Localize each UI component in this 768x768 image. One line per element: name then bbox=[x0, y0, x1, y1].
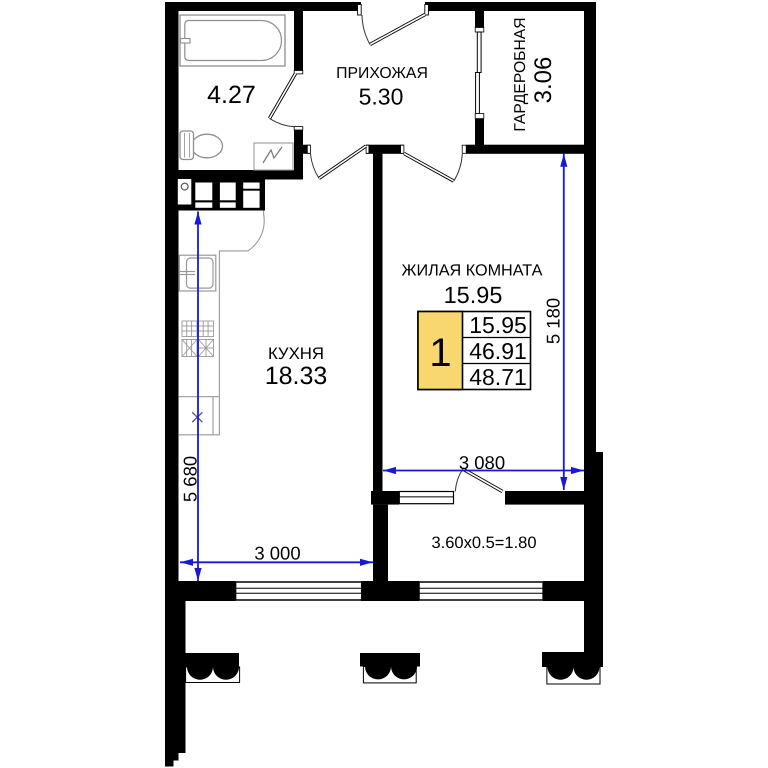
svg-text:3 000: 3 000 bbox=[254, 543, 300, 564]
svg-text:1: 1 bbox=[429, 331, 451, 375]
svg-text:5.30: 5.30 bbox=[359, 84, 404, 110]
svg-text:ЖИЛАЯ КОМНАТА: ЖИЛАЯ КОМНАТА bbox=[402, 262, 543, 280]
svg-text:ПРИХОЖАЯ: ПРИХОЖАЯ bbox=[336, 65, 428, 82]
svg-text:48.71: 48.71 bbox=[469, 364, 527, 390]
svg-text:4.27: 4.27 bbox=[207, 81, 256, 109]
svg-text:5 180: 5 180 bbox=[543, 298, 564, 344]
svg-text:3 080: 3 080 bbox=[459, 452, 505, 473]
svg-text:3.60x0.5=1.80: 3.60x0.5=1.80 bbox=[431, 534, 536, 552]
svg-text:18.33: 18.33 bbox=[265, 362, 328, 390]
svg-text:КУХНЯ: КУХНЯ bbox=[268, 344, 324, 363]
svg-text:ГАРДЕРОБНАЯ: ГАРДЕРОБНАЯ bbox=[512, 17, 529, 131]
svg-text:15.95: 15.95 bbox=[444, 282, 503, 308]
svg-text:3.06: 3.06 bbox=[530, 57, 557, 104]
svg-text:46.91: 46.91 bbox=[469, 338, 527, 364]
svg-text:5 680: 5 680 bbox=[180, 456, 201, 502]
svg-text:15.95: 15.95 bbox=[469, 312, 527, 338]
